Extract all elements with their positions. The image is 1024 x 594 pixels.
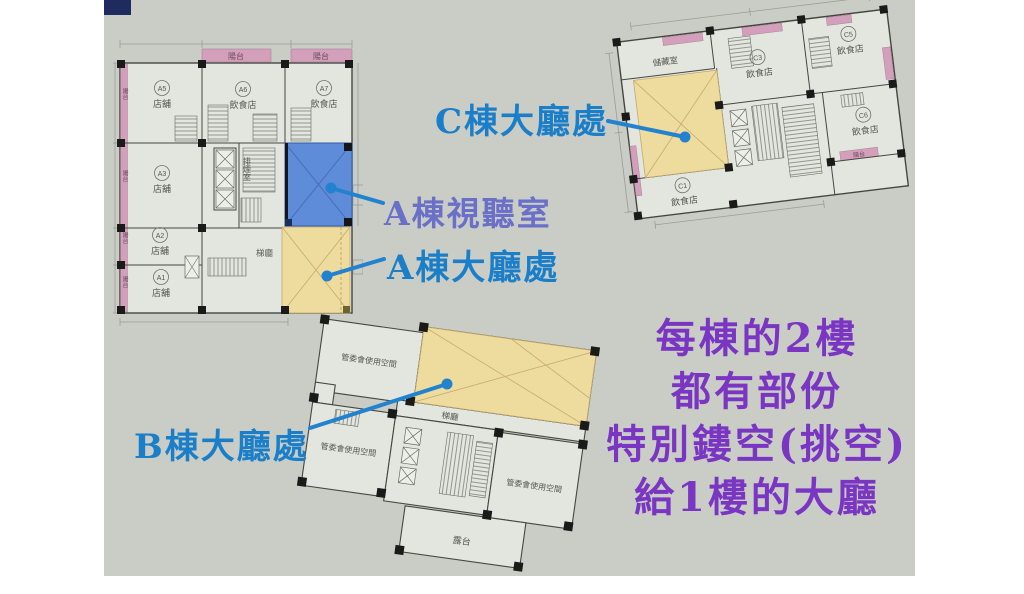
b-lobby-callout-label: B棟大廳處 — [134, 419, 309, 468]
balcony-label: 陽台 — [121, 275, 128, 289]
plan-b-floorplan: 管委會使用空間 管委會使用空間 管委會使用空間 梯廳 露台 — [280, 297, 627, 593]
unit-a3-type: 店舖 — [153, 183, 171, 194]
unit-c3-id: C3 — [753, 55, 763, 63]
unit-a6-id: A6 — [239, 87, 248, 94]
plan-a-floorplan: 陽台 陽台 陽台 陽台 陽台 陽台 — [113, 30, 363, 330]
plan-c-lobby-highlight — [633, 70, 728, 178]
balcony-label: 陽台 — [313, 51, 329, 61]
note-line-3: 特別鏤空(挑空) — [583, 418, 931, 471]
unit-a2-type: 店舖 — [151, 245, 169, 256]
unit-a7-id: A7 — [320, 86, 329, 93]
note-line-1: 每棟的2樓 — [583, 312, 931, 365]
balcony-label: 陽台 — [121, 169, 128, 183]
unit-a7-type: 飲食店 — [310, 98, 337, 109]
balcony-label: 陽台 — [228, 51, 244, 61]
stair-hall-label: 梯廳 — [256, 248, 274, 258]
unit-a3-id: A3 — [158, 171, 167, 178]
slide-note: 每棟的2樓 都有部份 特別鏤空(挑空) 給1樓的大廳 — [583, 312, 931, 524]
plan-c-floorplan: 陽台 儲藏室 C3 — [600, 0, 923, 232]
a-lobby-callout-label: A棟大廳處 — [387, 240, 559, 289]
balcony-label: 陽台 — [121, 231, 128, 245]
unit-a6-type: 飲食店 — [229, 99, 256, 110]
plan-a-av-room-highlight — [285, 143, 352, 226]
unit-c1-id: C1 — [678, 183, 688, 191]
a-av-room-callout-label: A棟視聽室 — [384, 187, 552, 235]
unit-a1-id: A1 — [157, 275, 166, 282]
c-lobby-callout-label: C棟大廳處 — [435, 94, 608, 143]
unit-a2-id: A2 — [156, 233, 165, 240]
smoke-exhaust-room-label: 排煙室 — [243, 156, 252, 181]
balcony-label: 陽台 — [121, 87, 128, 101]
unit-c5-id: C5 — [844, 31, 854, 39]
unit-a5-id: A5 — [158, 86, 167, 93]
slide-accent-bar — [104, 0, 131, 15]
note-line-4: 給1樓的大廳 — [583, 471, 931, 524]
note-line-2: 都有部份 — [583, 365, 931, 418]
unit-a1-type: 店舖 — [152, 287, 170, 298]
unit-a5-type: 店舖 — [153, 98, 171, 109]
unit-c6-id: C6 — [859, 112, 869, 120]
